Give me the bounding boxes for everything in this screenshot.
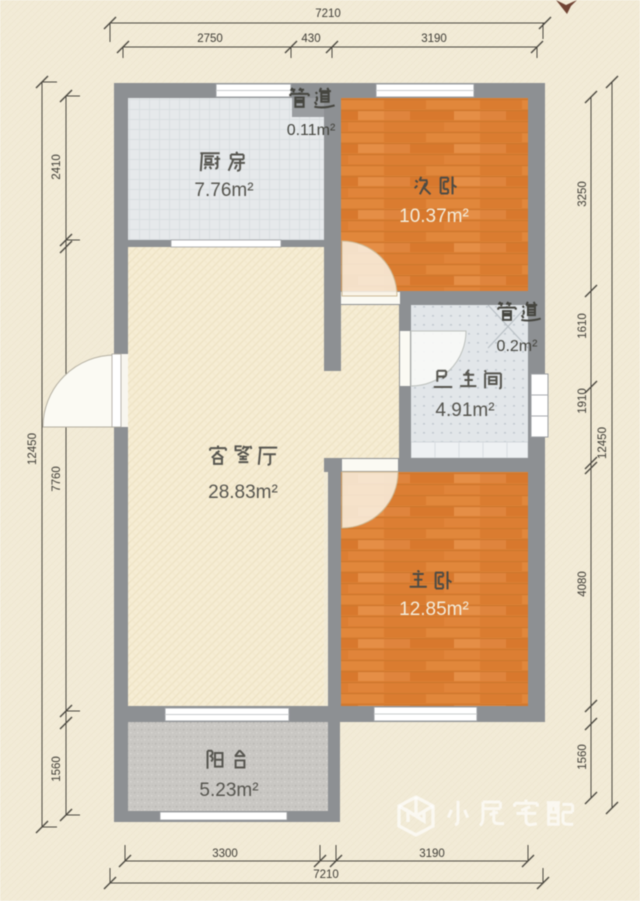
svg-text:1560: 1560 <box>51 756 63 782</box>
svg-text:0.2m²: 0.2m² <box>497 338 539 355</box>
svg-text:7210: 7210 <box>313 869 339 881</box>
svg-text:1610: 1610 <box>577 313 589 339</box>
svg-text:4.91m²: 4.91m² <box>435 400 494 421</box>
svg-text:4080: 4080 <box>577 571 589 597</box>
svg-text:1910: 1910 <box>577 388 589 414</box>
svg-text:10.37m²: 10.37m² <box>399 206 469 227</box>
svg-text:1560: 1560 <box>577 744 589 770</box>
svg-text:7210: 7210 <box>315 8 341 20</box>
svg-text:12450: 12450 <box>597 427 609 459</box>
svg-text:3300: 3300 <box>212 848 238 860</box>
svg-text:2410: 2410 <box>51 154 63 180</box>
svg-text:7.76m²: 7.76m² <box>194 180 253 201</box>
svg-text:28.83m²: 28.83m² <box>208 482 278 503</box>
svg-text:0.11m²: 0.11m² <box>287 122 336 139</box>
svg-text:3250: 3250 <box>577 181 589 207</box>
svg-text:3190: 3190 <box>421 33 447 45</box>
svg-text:12.85m²: 12.85m² <box>399 599 469 620</box>
svg-text:5.23m²: 5.23m² <box>199 780 258 801</box>
svg-text:3190: 3190 <box>419 848 445 860</box>
svg-text:2750: 2750 <box>197 33 223 45</box>
svg-text:12450: 12450 <box>27 433 39 465</box>
svg-text:7760: 7760 <box>51 466 63 492</box>
svg-text:430: 430 <box>301 33 320 45</box>
